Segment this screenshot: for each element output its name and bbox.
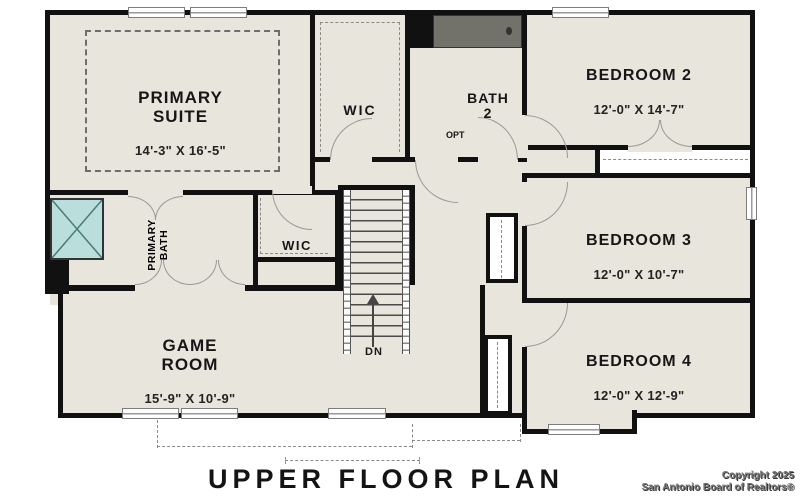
bedroom-2-dims: 12'-0" X 14'-7" — [530, 103, 748, 117]
shower-glass-lines — [52, 200, 102, 258]
primary-bath-label: PRIMARY BATH — [119, 200, 197, 290]
window — [128, 7, 185, 18]
bedroom-3-dims: 12'-0" X 10'-7" — [530, 268, 748, 282]
stair-rail-right — [402, 190, 410, 354]
tub-alcove-wall — [405, 15, 435, 48]
bedroom-2-name: BEDROOM 2 — [530, 67, 748, 84]
primary-suite-dims: 14'-3" X 16'-5" — [78, 144, 283, 158]
bedroom-4-dims: 12'-0" X 12'-9" — [530, 389, 748, 403]
lower-floor-outline — [157, 446, 412, 447]
stair-arrow-head-icon — [367, 294, 379, 304]
left-wall-notch — [45, 256, 69, 294]
tub-faucet-icon — [506, 27, 512, 35]
game-room-dims: 15'-9" X 10'-9" — [75, 392, 305, 406]
lower-floor-outline — [285, 457, 286, 464]
opt-text: OPT — [446, 131, 482, 141]
game-room-name: GAME ROOM — [75, 337, 305, 374]
hall-linen-closet — [486, 213, 518, 283]
bedroom-3-name: BEDROOM 3 — [530, 232, 748, 249]
closet-rod-dash — [603, 159, 748, 160]
wic-primary-name: WIC — [318, 103, 402, 118]
copyright-notice: Copyright 2025 San Antonio Board of Real… — [641, 470, 794, 494]
bedroom-3-label: BEDROOM 3 12'-0" X 10'-7" — [530, 215, 748, 299]
wic-hall-label: WIC — [262, 222, 332, 271]
copyright-line2: San Antonio Board of Realtors® — [641, 482, 794, 494]
shower-icon — [50, 198, 104, 260]
window — [552, 7, 609, 18]
bath-2-opt-label: OPT — [446, 114, 482, 158]
lower-floor-outline — [412, 424, 413, 448]
stairs-dn-label: DN — [352, 346, 396, 358]
bedroom-4-label: BEDROOM 4 12'-0" X 12'-9" — [530, 336, 748, 420]
wic-primary-label: WIC — [318, 86, 402, 136]
lower-floor-outline — [520, 424, 521, 442]
lower-floor-outline — [285, 460, 420, 461]
window — [548, 424, 600, 435]
bedroom4-closet-rod-dash — [497, 342, 498, 408]
primary-suite-name: PRIMARY SUITE — [78, 89, 283, 126]
hall-end-wall — [480, 413, 527, 418]
bedroom-4-closet — [484, 335, 512, 415]
bedroom-4-name: BEDROOM 4 — [530, 353, 748, 370]
door-opening — [128, 187, 183, 197]
lower-floor-outline — [412, 440, 520, 441]
stair-rail-left — [343, 190, 351, 354]
wic-hall-name: WIC — [262, 239, 332, 253]
window — [190, 7, 247, 18]
window — [328, 408, 386, 419]
primary-suite-label: PRIMARY SUITE 14'-3" X 16'-5" — [78, 72, 283, 176]
bedroom-2-label: BEDROOM 2 12'-0" X 14'-7" — [530, 50, 748, 134]
stair-treads — [343, 190, 410, 342]
linen-rod-dash — [501, 220, 502, 278]
copyright-line1: Copyright 2025 — [641, 470, 794, 482]
floor-plan-canvas: DN PRIMARY SUITE 14'-3" X 16'-5" WIC BAT… — [0, 0, 800, 500]
stair-direction-arrow — [372, 303, 374, 347]
lower-floor-outline — [157, 420, 158, 448]
game-room-label: GAME ROOM 15'-9" X 10'-9" — [75, 320, 305, 424]
lower-floor-outline — [419, 457, 420, 464]
